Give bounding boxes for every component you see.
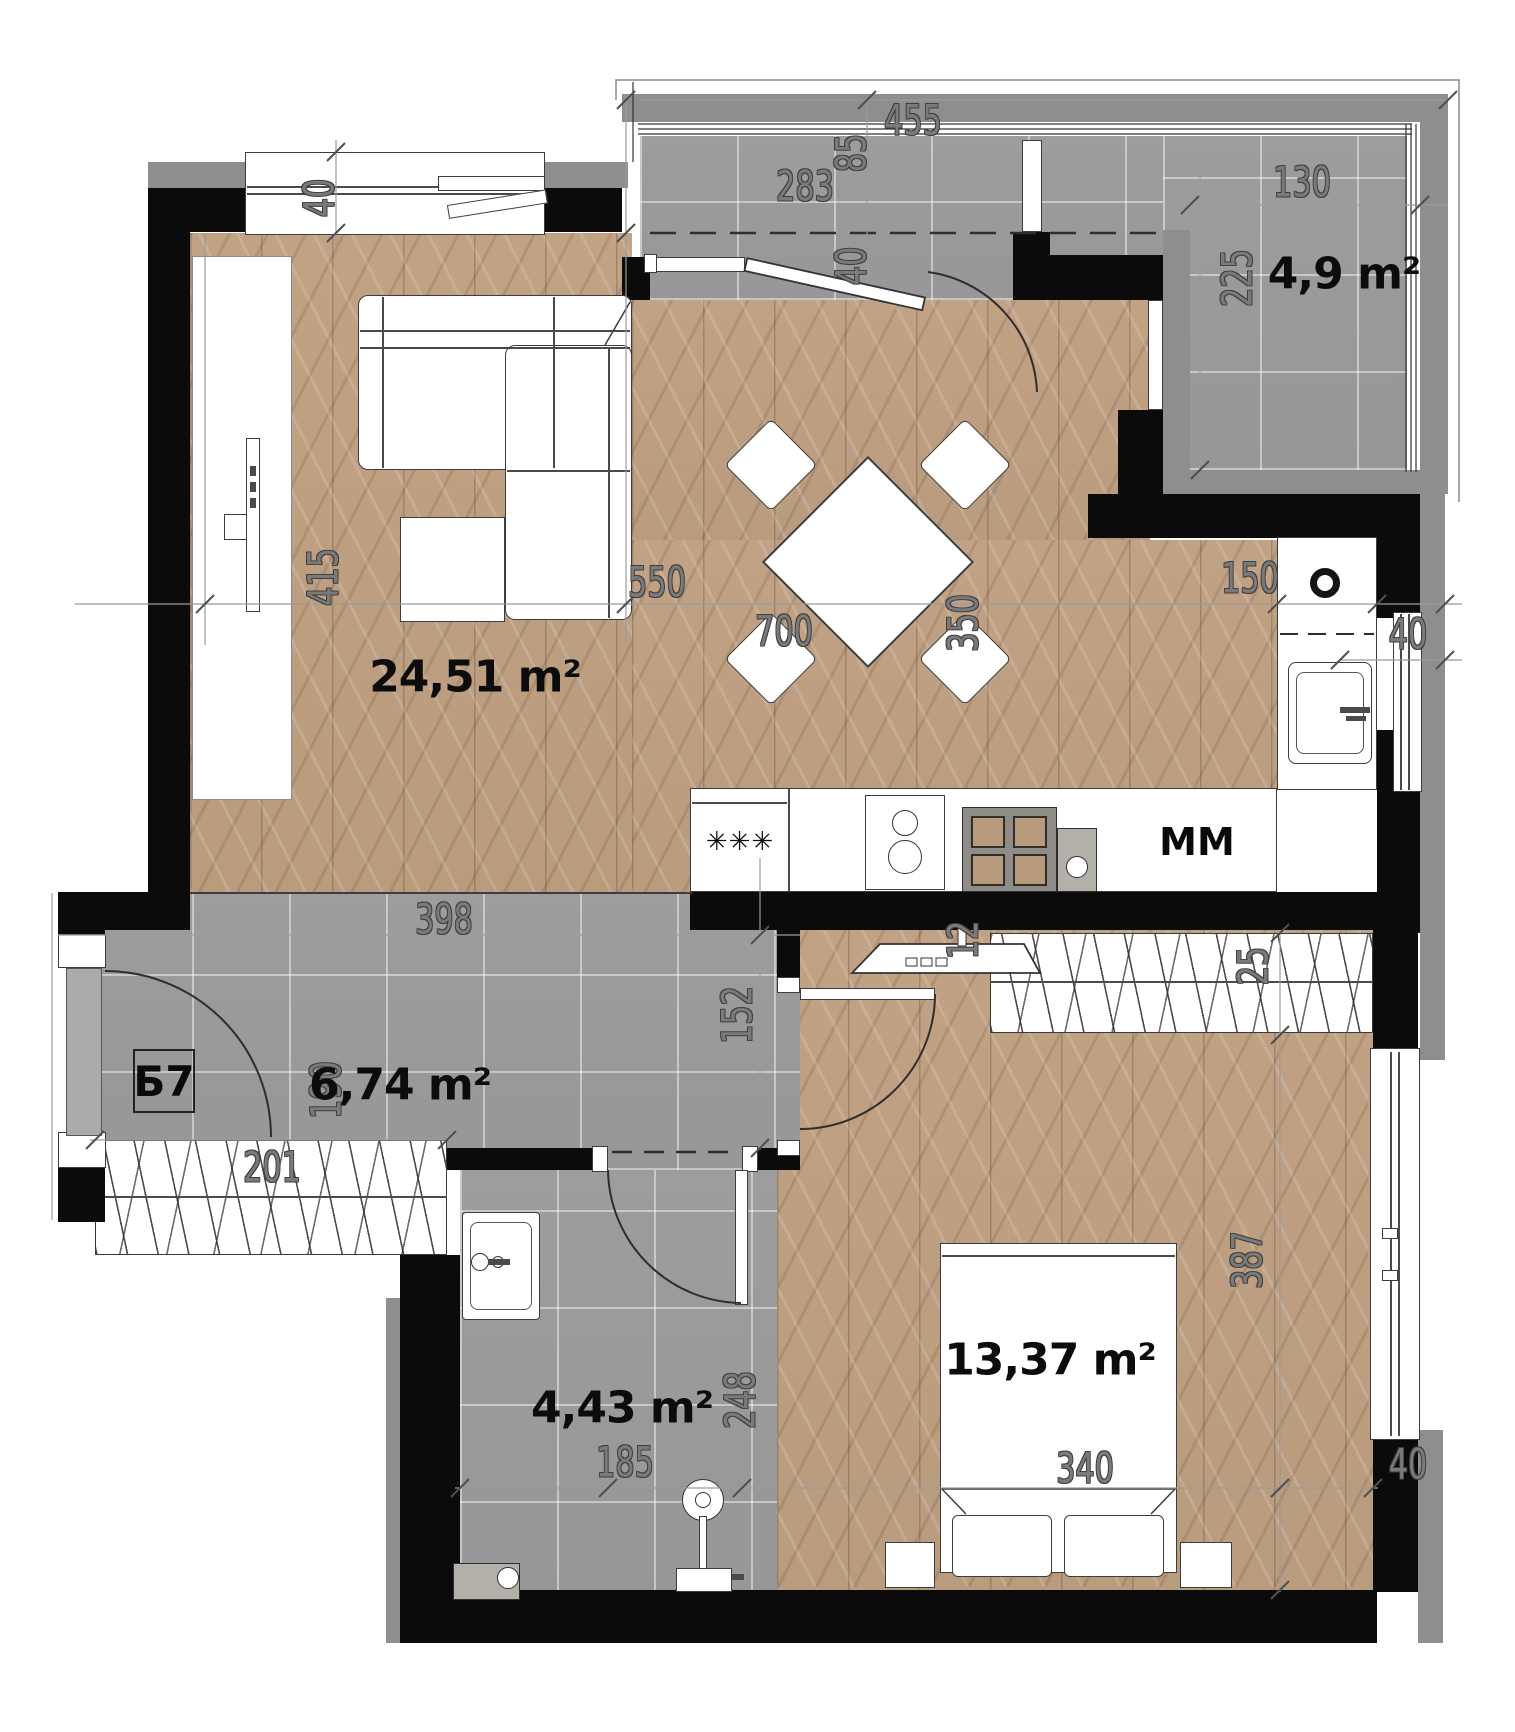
exterior-band (622, 94, 1448, 122)
dimension-label: 455 (884, 96, 942, 145)
area-label-bedroom: 13,37 m² (944, 1335, 1156, 1386)
tv-screen (246, 438, 260, 612)
dimension-label: 550 (628, 558, 686, 607)
balcony-door-window (656, 257, 745, 272)
door-jamb (58, 1132, 106, 1168)
exterior-band (1163, 470, 1448, 494)
bathroom-faucet (471, 1253, 489, 1271)
oven-pane (971, 854, 1005, 886)
wall (447, 1148, 607, 1170)
toilet-stem (699, 1516, 707, 1570)
exterior-band (1420, 494, 1445, 1060)
dimension-label: 340 (1056, 1444, 1114, 1493)
toilet-handle (732, 1574, 744, 1580)
door-jamb (777, 1140, 800, 1156)
wall (148, 188, 245, 232)
balcony-partition-window (1022, 140, 1042, 232)
wall (545, 188, 622, 232)
living-window-frame-line (247, 193, 543, 195)
pillow (952, 1515, 1052, 1577)
tv-port (250, 498, 256, 508)
dimension-label: 40 (827, 247, 876, 285)
kitchen-counter-divider (692, 802, 787, 804)
oven-pane (1013, 854, 1047, 886)
bedroom-wardrobe-hatch (990, 933, 1373, 1033)
pillow (1064, 1515, 1164, 1577)
kitchen-faucet (1340, 707, 1370, 713)
bathroom-faucet-spout (488, 1259, 510, 1265)
entry-door-leaf (66, 968, 102, 1136)
bedroom-window-frame-line (1398, 1052, 1400, 1436)
bedroom-wardrobe-shelf-line (990, 981, 1373, 983)
toilet-tank (676, 1568, 732, 1592)
door-jamb (592, 1146, 608, 1172)
water-heater-dial (497, 1567, 519, 1589)
sofa-seam (360, 330, 630, 332)
sofa-seam (382, 297, 384, 468)
door-jamb (777, 977, 800, 993)
sofa-seam (507, 470, 630, 472)
door-jamb (58, 934, 106, 968)
wall (58, 1166, 105, 1222)
dimension-label: 415 (299, 548, 348, 606)
wall (1373, 930, 1418, 1057)
sofa (505, 345, 632, 620)
sofa-seam (360, 347, 630, 349)
dimension-label: 387 (1223, 1231, 1272, 1289)
floor-plan: Б7 455 283 85 40 130 225 40 415 550 700 … (0, 0, 1515, 1732)
area-label-hallway: 6,74 m² (309, 1060, 491, 1111)
dimension-label: 283 (776, 162, 834, 211)
toilet-bowl-center (695, 1492, 711, 1508)
area-label-living: 24,51 m² (369, 652, 581, 703)
dimension-label: 350 (939, 594, 988, 652)
oven-pane (1013, 816, 1047, 848)
wall (1377, 538, 1420, 618)
dimension-label: 130 (1273, 158, 1331, 207)
unit-label-box: Б7 (133, 1049, 195, 1113)
washing-machine-label: MM (1159, 820, 1235, 864)
bathroom-door-leaf (735, 1170, 748, 1305)
wall (400, 1590, 1377, 1643)
dimension-label: 152 (713, 986, 762, 1044)
wall (758, 1148, 777, 1170)
cooktop-burner (888, 840, 922, 874)
living-window-sash (438, 176, 545, 191)
wall (1118, 410, 1163, 494)
area-label-balcony: 4,9 m² (1268, 249, 1420, 300)
wall (1088, 494, 1420, 538)
exterior-band (1420, 94, 1448, 494)
kitchen-counter-divider (788, 788, 790, 892)
window-jamb (644, 254, 657, 273)
sofa-seam (608, 347, 610, 618)
sofa-seam (553, 297, 555, 468)
kitchen-sink-basin (1296, 672, 1364, 754)
dimension-label: 700 (755, 607, 813, 656)
bedroom-window (1370, 1048, 1420, 1440)
dimension-label: 40 (295, 179, 344, 217)
door-jamb (742, 1146, 758, 1172)
coffee-table (400, 517, 505, 622)
oven (962, 807, 1057, 892)
kitchen-appliance-knob (1066, 856, 1088, 878)
area-label-bathroom: 4,43 m² (531, 1383, 713, 1434)
hall-wardrobe-shelf-line (95, 1196, 447, 1198)
bedroom-door-leaf (800, 988, 935, 1000)
window-handle (1382, 1228, 1398, 1239)
dimension-label: 40 (1389, 610, 1427, 659)
dimension-label: 398 (415, 895, 473, 944)
wall (58, 892, 105, 936)
unit-label: Б7 (133, 1057, 194, 1106)
dimension-label: 248 (716, 1371, 765, 1429)
dimension-label: 40 (1389, 1440, 1427, 1489)
freezer-stars-icon: ✳✳✳ (706, 827, 774, 857)
exterior-band (1163, 230, 1190, 470)
wall (148, 188, 190, 930)
kitchen-faucet (1346, 716, 1366, 721)
dimension-label: 185 (596, 1438, 654, 1487)
balcony-partition-window (1148, 300, 1163, 410)
window-handle (1382, 1270, 1398, 1281)
tv-bracket (224, 514, 248, 540)
bedroom-window-frame-line (1390, 1052, 1392, 1436)
wall (400, 1255, 460, 1600)
dimension-label: 12 (939, 921, 988, 959)
wall (1013, 232, 1050, 300)
bed-sheet-line (942, 1255, 1175, 1257)
oven-pane (971, 816, 1005, 848)
round-fixture-icon (1310, 568, 1340, 598)
dimension-label: 225 (1213, 249, 1262, 307)
dimension-label: 150 (1221, 554, 1279, 603)
cooktop-burner (892, 810, 918, 836)
dimension-label: 201 (243, 1143, 301, 1192)
dimension-label: 25 (1229, 947, 1278, 985)
wall (1050, 255, 1163, 300)
exterior-band (386, 1298, 400, 1643)
nightstand (885, 1542, 935, 1588)
dimension-label: 85 (827, 134, 876, 172)
tv-port (250, 482, 256, 492)
nightstand (1180, 1542, 1232, 1588)
tv-port (250, 466, 256, 476)
